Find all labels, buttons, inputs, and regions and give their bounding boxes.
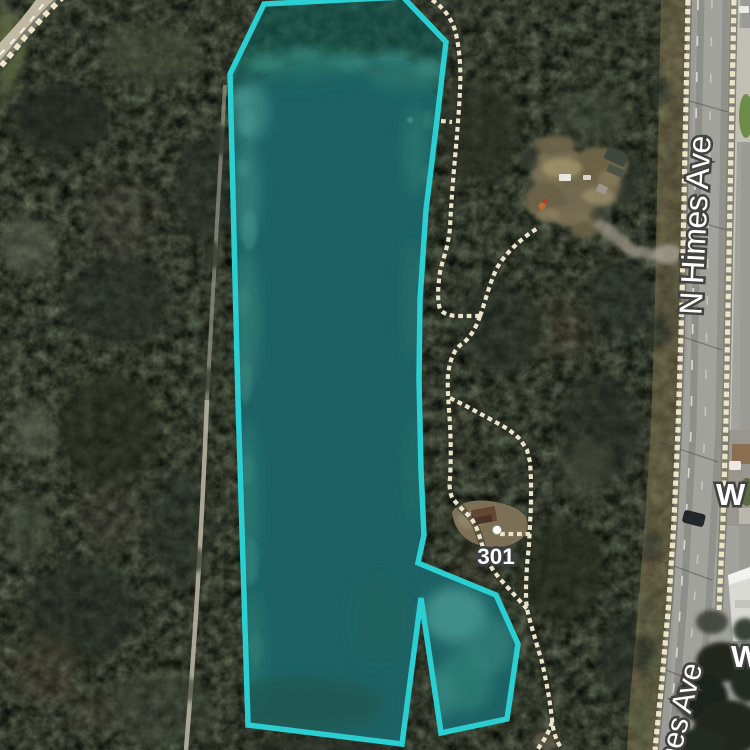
svg-text:301: 301	[477, 544, 515, 569]
svg-text:W Cr: W Cr	[716, 477, 750, 512]
svg-text:W: W	[731, 639, 750, 674]
